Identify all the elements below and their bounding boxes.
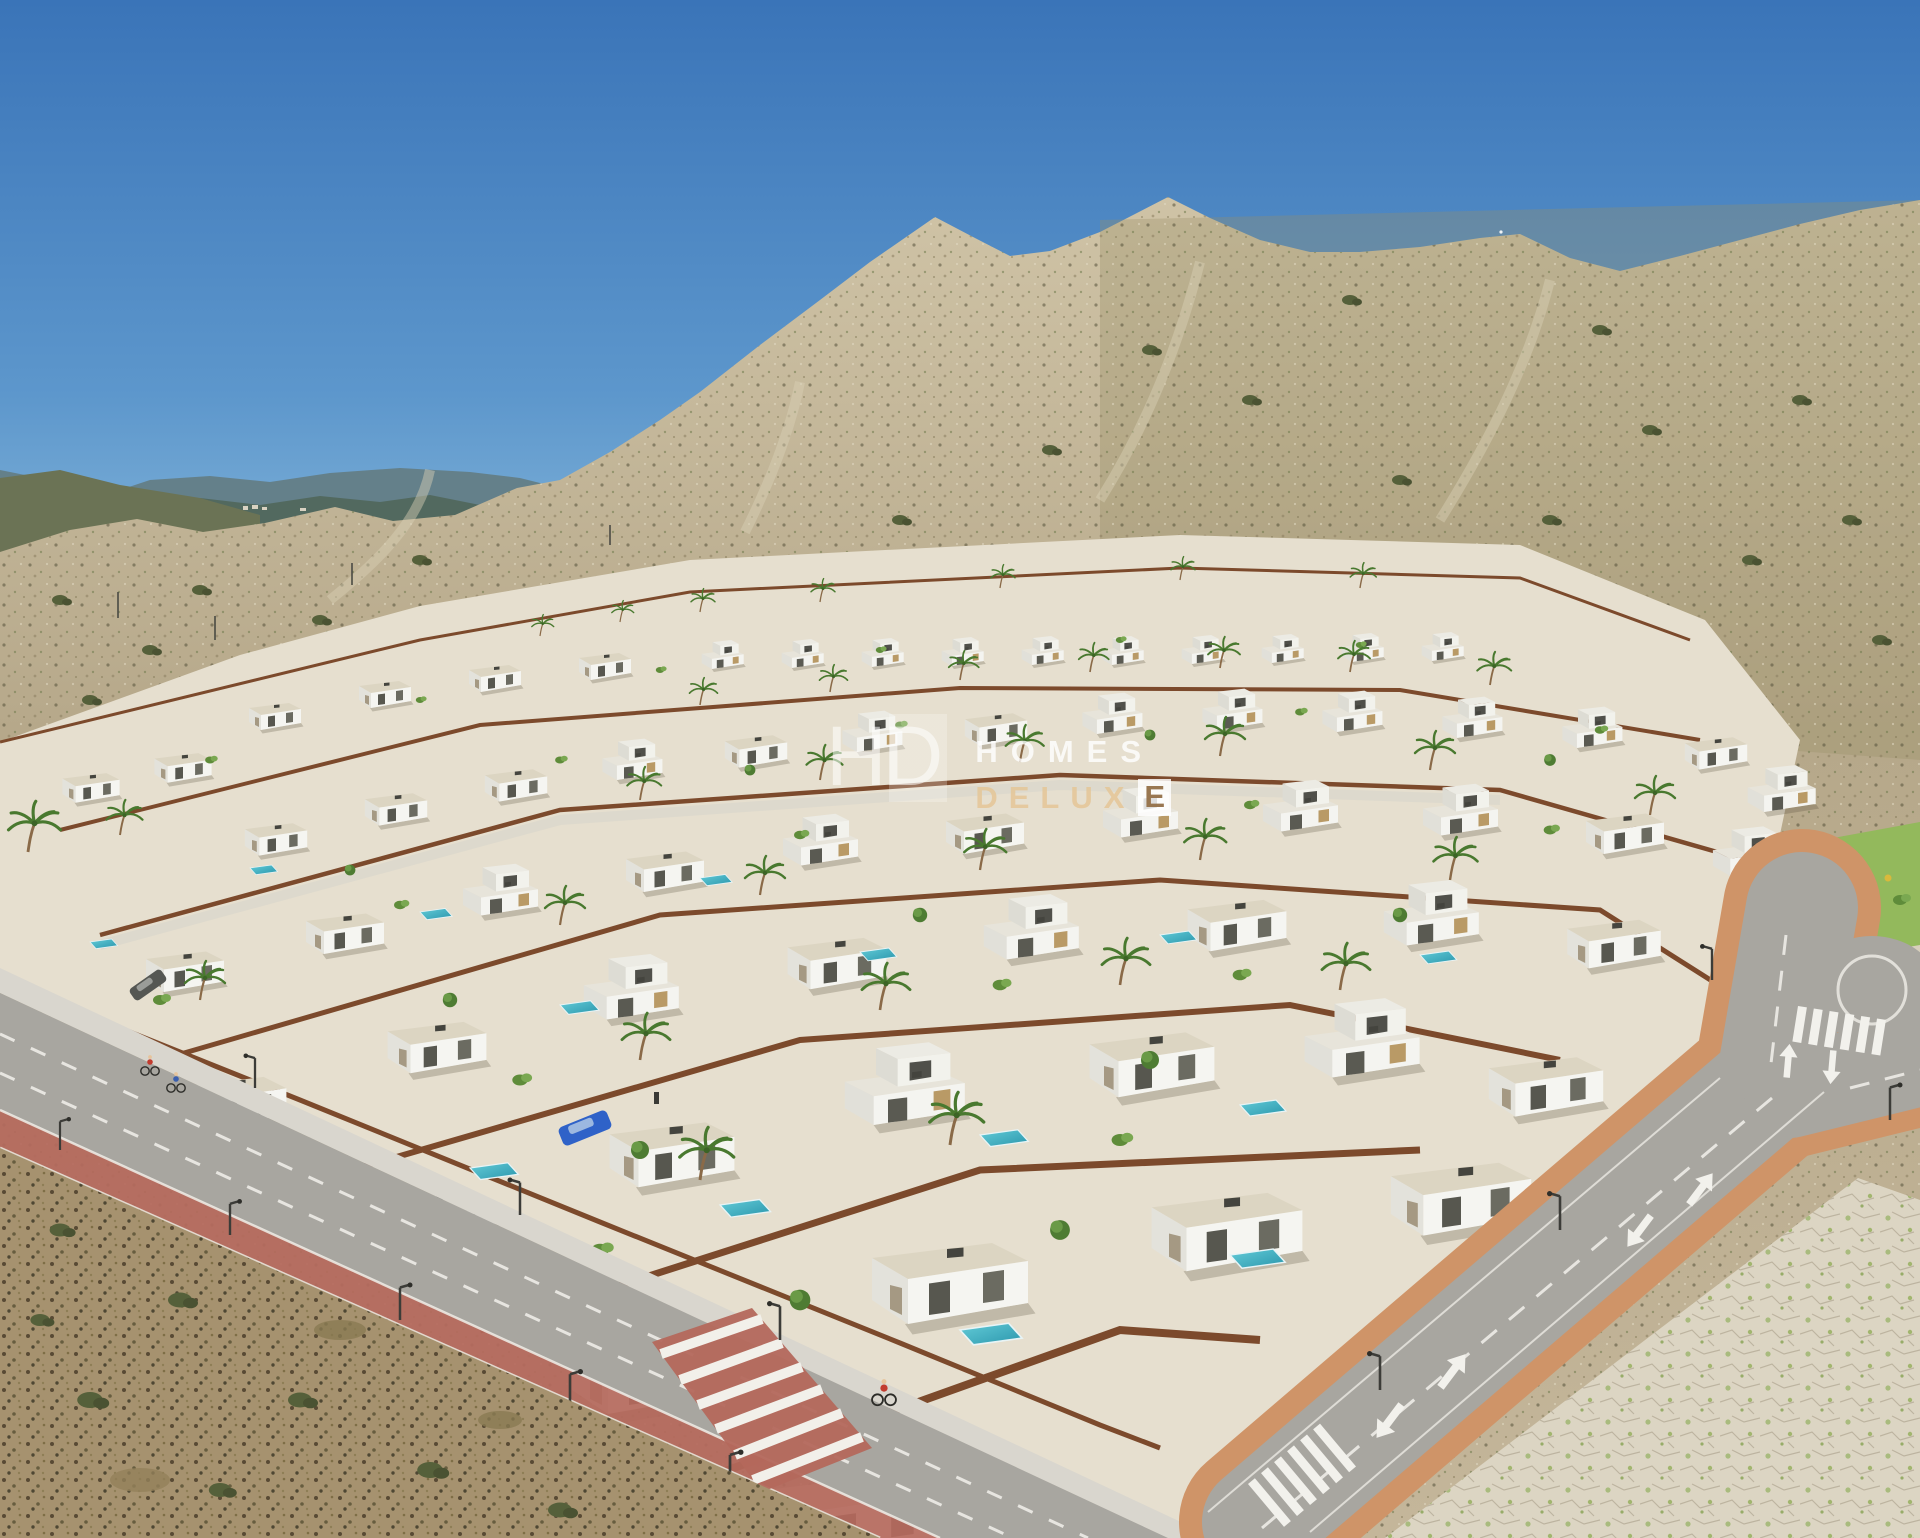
tree: [745, 765, 756, 776]
tree: [913, 908, 927, 922]
tree: [443, 993, 457, 1007]
tree: [1393, 908, 1407, 922]
scene-render: [0, 0, 1920, 1538]
tree: [631, 1141, 649, 1159]
tree: [1050, 1220, 1070, 1240]
tree: [1141, 1051, 1159, 1069]
tree: [1145, 730, 1156, 741]
tree: [1544, 754, 1556, 766]
pedestrian: [654, 1092, 659, 1104]
aerial-photo-stage: HD HOMES DELUXE: [0, 0, 1920, 1538]
tree: [345, 865, 356, 876]
tree: [790, 1290, 811, 1311]
